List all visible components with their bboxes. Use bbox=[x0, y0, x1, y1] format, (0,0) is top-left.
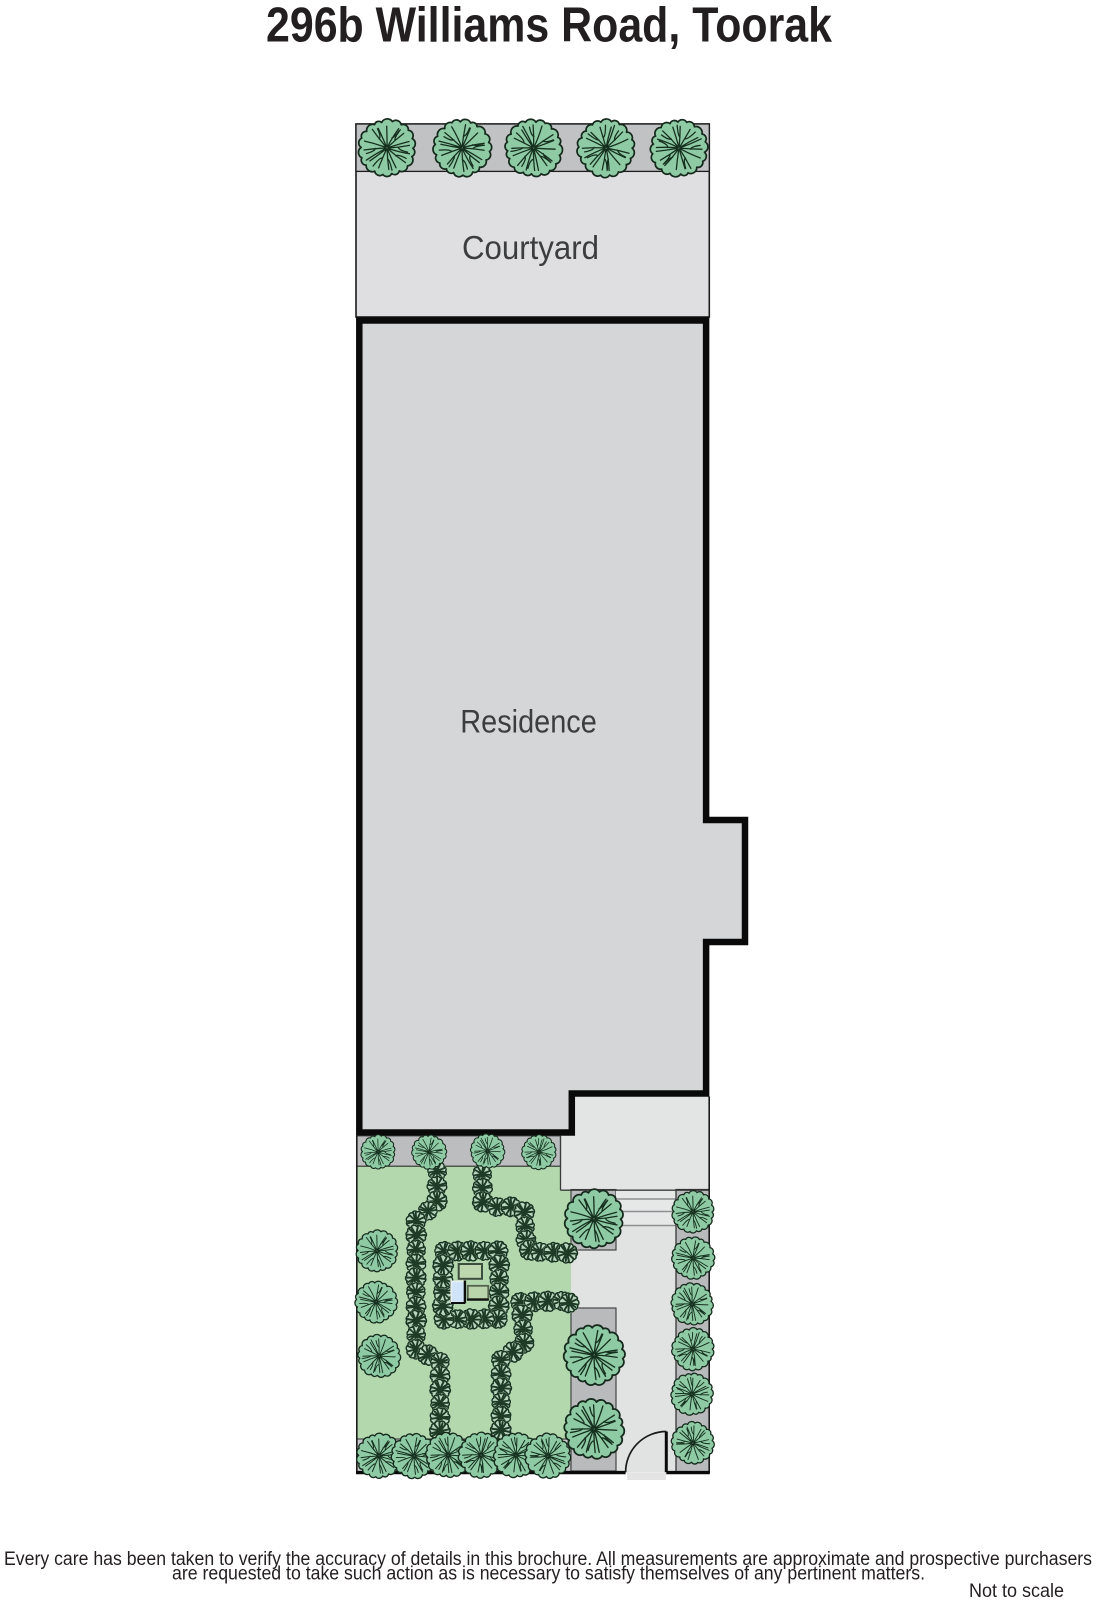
svg-text:are requested to take such act: are requested to take such action as is … bbox=[172, 1564, 925, 1585]
svg-text:Residence: Residence bbox=[460, 704, 597, 740]
svg-text:296b Williams Road, Toorak: 296b Williams Road, Toorak bbox=[266, 0, 833, 53]
svg-text:Courtyard: Courtyard bbox=[462, 229, 599, 266]
svg-text:Not to scale: Not to scale bbox=[969, 1580, 1064, 1600]
